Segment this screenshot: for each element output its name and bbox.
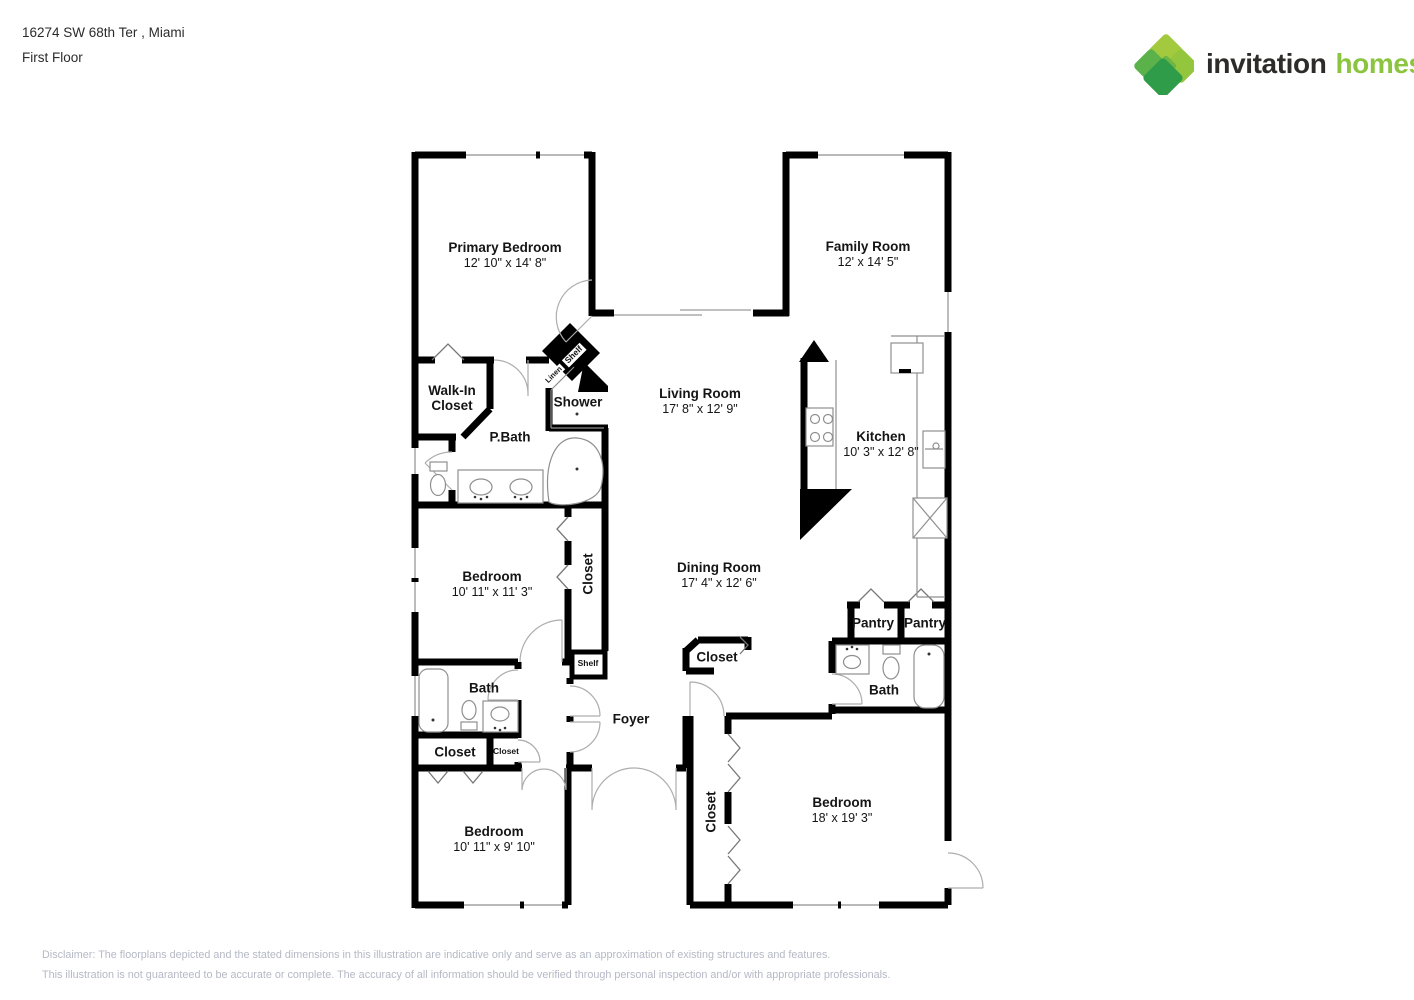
label-shelf-foyer-name: Shelf xyxy=(578,659,599,669)
label-living-room: Living Room17' 8" x 12' 9" xyxy=(659,386,741,416)
label-bedroom-4-dims: 18' x 19' 3" xyxy=(812,811,873,825)
label-closet-hall-name: Closet xyxy=(434,744,475,759)
label-family-room-dims: 12' x 14' 5" xyxy=(826,255,911,269)
floorplan: Primary Bedroom12' 10" x 14' 8"Family Ro… xyxy=(0,0,1414,1000)
label-closet-bedroom-4: Closet xyxy=(703,791,718,832)
bathtub-icon xyxy=(419,669,448,732)
disclaimer-line-1: Disclaimer: The floorplans depicted and … xyxy=(42,946,830,965)
label-bedroom-3-dims: 10' 11" x 9' 10" xyxy=(453,840,535,854)
toilet-tank-icon xyxy=(430,462,447,471)
label-dining-room: Dining Room17' 4" x 12' 6" xyxy=(677,560,761,590)
label-closet-small: Closet xyxy=(493,747,519,757)
toilet-icon xyxy=(431,475,446,496)
label-bedroom-2-dims: 10' 11" x 11' 3" xyxy=(452,585,533,599)
label-closet-bedroom-2: Closet xyxy=(580,553,595,594)
stove-icon xyxy=(806,408,833,446)
toilet-tank-icon xyxy=(883,645,900,654)
label-bedroom-2: Bedroom10' 11" x 11' 3" xyxy=(452,569,533,599)
wall-oven-icon xyxy=(891,343,923,373)
opening-lines-layer xyxy=(614,310,751,315)
disclaimer-line-2: This illustration is not guaranteed to b… xyxy=(42,966,890,985)
toilet-tank-icon xyxy=(461,722,477,730)
label-closet-bedroom-4-name: Closet xyxy=(703,791,718,832)
toilet-icon xyxy=(462,701,476,720)
label-family-room: Family Room12' x 14' 5" xyxy=(826,239,911,269)
floorplan-drawing xyxy=(0,0,1414,1000)
label-dining-room-dims: 17' 4" x 12' 6" xyxy=(677,576,761,590)
label-primary-bedroom-dims: 12' 10" x 14' 8" xyxy=(448,256,561,270)
label-bath-hall-name: Bath xyxy=(469,680,499,695)
label-primary-bedroom: Primary Bedroom12' 10" x 14' 8" xyxy=(448,240,561,270)
label-bedroom-3: Bedroom10' 11" x 9' 10" xyxy=(453,824,535,854)
label-walk-in-closet: Walk-In Closet xyxy=(428,383,476,413)
label-closet-small-name: Closet xyxy=(493,747,519,757)
label-shower-name: Shower xyxy=(554,394,603,409)
label-pantry-left-name: Pantry xyxy=(852,615,894,630)
label-pantry-left: Pantry xyxy=(852,615,894,630)
toilet-icon xyxy=(883,657,899,679)
label-closet-dining-name: Closet xyxy=(696,649,737,664)
label-bedroom-4: Bedroom18' x 19' 3" xyxy=(812,795,873,825)
label-primary-bedroom-name: Primary Bedroom xyxy=(448,240,561,255)
label-p-bath: P.Bath xyxy=(489,429,530,444)
corner-tub-icon xyxy=(548,438,603,505)
label-bedroom-2-name: Bedroom xyxy=(452,569,533,584)
label-bath-hall: Bath xyxy=(469,680,499,695)
label-living-room-dims: 17' 8" x 12' 9" xyxy=(659,402,741,416)
label-dining-room-name: Dining Room xyxy=(677,560,761,575)
label-pantry-right-name: Pantry xyxy=(904,615,946,630)
label-foyer-name: Foyer xyxy=(613,711,650,726)
label-kitchen: Kitchen10' 3" x 12' 8" xyxy=(843,429,919,459)
label-bedroom-3-name: Bedroom xyxy=(453,824,535,839)
label-bath-right: Bath xyxy=(869,682,899,697)
label-kitchen-dims: 10' 3" x 12' 8" xyxy=(843,445,919,459)
label-closet-hall: Closet xyxy=(434,744,475,759)
label-living-room-name: Living Room xyxy=(659,386,741,401)
label-family-room-name: Family Room xyxy=(826,239,911,254)
label-shelf-foyer: Shelf xyxy=(578,659,599,669)
floorplan-page: 16274 SW 68th Ter , Miami First Floor in… xyxy=(0,0,1414,1000)
label-foyer: Foyer xyxy=(613,711,650,726)
label-p-bath-name: P.Bath xyxy=(489,429,530,444)
label-bath-right-name: Bath xyxy=(869,682,899,697)
label-pantry-right: Pantry xyxy=(904,615,946,630)
label-bedroom-4-name: Bedroom xyxy=(812,795,873,810)
label-shower: Shower xyxy=(554,394,603,409)
label-closet-dining: Closet xyxy=(696,649,737,664)
label-kitchen-name: Kitchen xyxy=(843,429,919,444)
label-walk-in-closet-name: Walk-In Closet xyxy=(428,383,476,413)
label-closet-bedroom-2-name: Closet xyxy=(580,553,595,594)
